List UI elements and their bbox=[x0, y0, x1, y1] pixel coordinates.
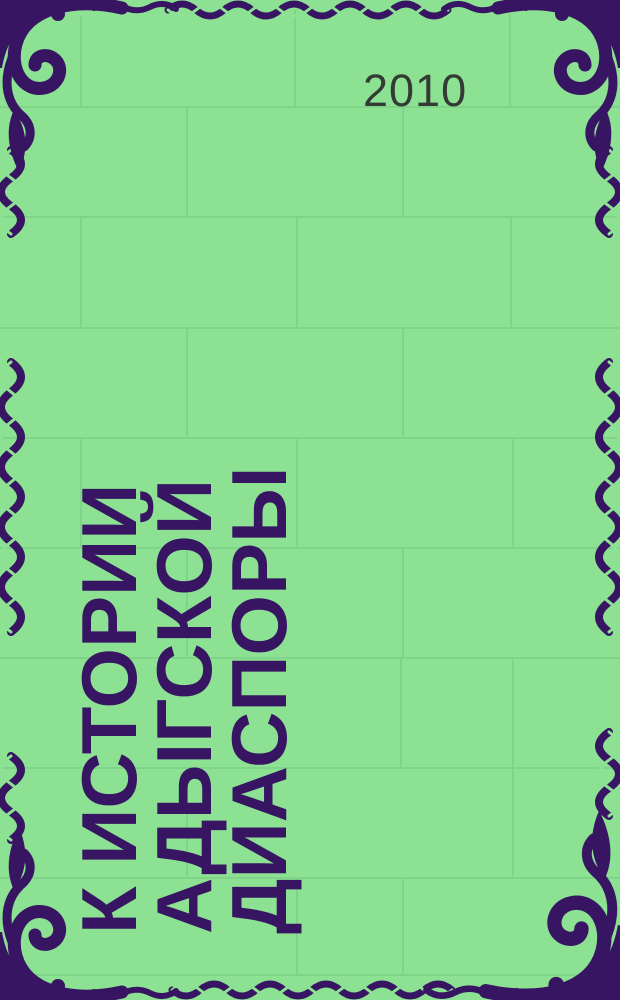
corner-flourish-top-right-icon bbox=[444, 0, 620, 172]
title-line-3: ДИАСПОРЫ bbox=[222, 467, 297, 934]
book-title: К ИСТОРИИ АДЫГСКОЙ ДИАСПОРЫ bbox=[72, 467, 297, 934]
title-line-2: АДЫГСКОЙ bbox=[147, 467, 222, 934]
right-edge-vine-icon bbox=[599, 150, 619, 816]
bottom-edge-vine-icon bbox=[172, 984, 452, 996]
corner-flourish-top-left-icon bbox=[0, 0, 176, 172]
book-cover: 2010 К ИСТОРИИ АДЫГСКОЙ ДИАСПОРЫ bbox=[0, 0, 620, 1000]
corner-flourish-bottom-right-icon bbox=[426, 811, 620, 1000]
left-edge-vine-icon bbox=[1, 150, 21, 840]
title-line-1: К ИСТОРИИ bbox=[72, 467, 147, 934]
year-label: 2010 bbox=[363, 66, 467, 116]
top-edge-vine-icon bbox=[168, 4, 448, 16]
